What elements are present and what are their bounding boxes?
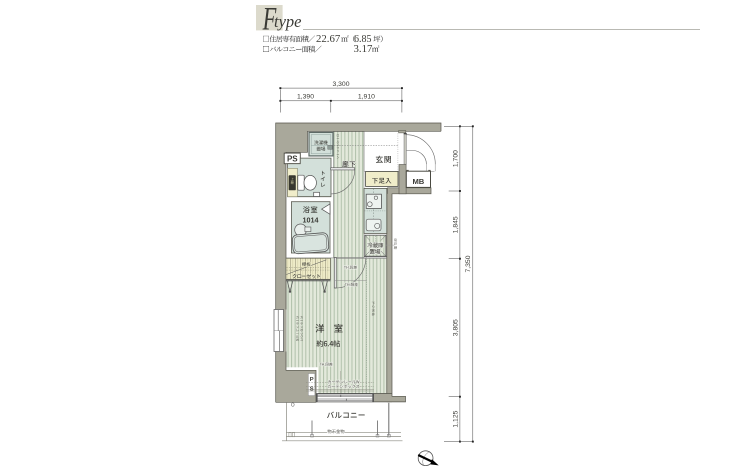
svg-text:S: S (310, 387, 314, 393)
svg-text:1,845: 1,845 (452, 216, 459, 233)
svg-text:1,125: 1,125 (452, 410, 459, 427)
svg-text:1,700: 1,700 (452, 150, 459, 167)
svg-text:7,350: 7,350 (465, 255, 472, 272)
svg-text:1,390: 1,390 (297, 93, 314, 100)
svg-text:3.17: 3.17 (354, 43, 373, 55)
svg-text:1,910: 1,910 (358, 93, 375, 100)
svg-text:22.67: 22.67 (316, 33, 341, 45)
svg-text:3,805: 3,805 (452, 319, 459, 336)
svg-text:type: type (274, 12, 301, 31)
svg-text:MB: MB (412, 177, 424, 186)
svg-text:PS: PS (287, 155, 298, 164)
svg-text:1014: 1014 (303, 215, 319, 224)
svg-text:3,300: 3,300 (332, 81, 349, 88)
